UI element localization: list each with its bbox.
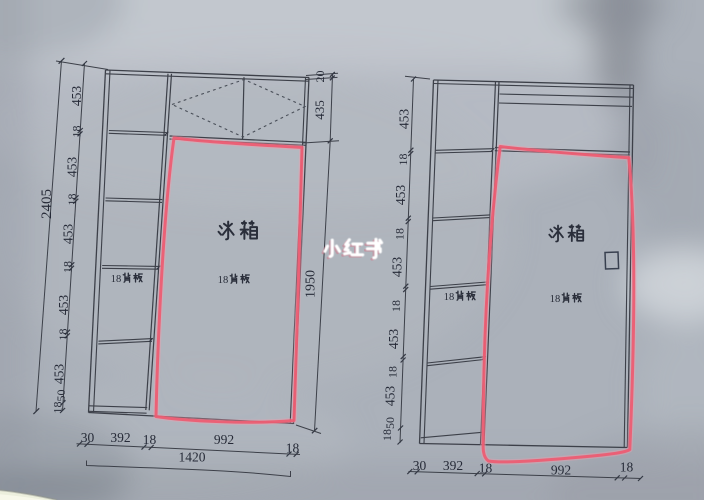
svg-text:18: 18 <box>444 292 455 303</box>
svg-text:20: 20 <box>313 71 327 83</box>
svg-text:453: 453 <box>383 386 398 407</box>
svg-text:18: 18 <box>385 366 399 378</box>
svg-text:18: 18 <box>396 154 410 166</box>
svg-text:453: 453 <box>69 86 84 107</box>
svg-text:18: 18 <box>550 294 561 305</box>
svg-text:453: 453 <box>393 185 408 206</box>
svg-text:30: 30 <box>413 458 427 473</box>
svg-text:1420: 1420 <box>179 450 206 465</box>
svg-text:50: 50 <box>383 417 397 429</box>
svg-text:453: 453 <box>65 157 80 178</box>
svg-text:18: 18 <box>218 275 229 286</box>
svg-text:992: 992 <box>551 463 571 478</box>
svg-text:18: 18 <box>50 402 64 414</box>
svg-text:453: 453 <box>61 224 76 245</box>
svg-text:392: 392 <box>110 430 130 445</box>
svg-text:435: 435 <box>312 100 327 120</box>
svg-text:18: 18 <box>392 228 406 240</box>
svg-text:392: 392 <box>443 458 463 473</box>
svg-text:18: 18 <box>69 126 83 138</box>
svg-text:18: 18 <box>389 300 403 312</box>
svg-text:18: 18 <box>65 194 79 206</box>
svg-text:18: 18 <box>60 261 74 273</box>
svg-text:992: 992 <box>214 432 234 447</box>
svg-text:453: 453 <box>390 257 405 278</box>
svg-text:30: 30 <box>81 430 95 445</box>
svg-text:50: 50 <box>54 390 68 402</box>
svg-text:453: 453 <box>52 364 67 385</box>
svg-text:18: 18 <box>111 274 122 285</box>
svg-text:453: 453 <box>397 109 412 130</box>
svg-text:453: 453 <box>386 329 401 350</box>
svg-text:2405: 2405 <box>39 189 55 219</box>
svg-text:453: 453 <box>56 295 71 316</box>
svg-text:1950: 1950 <box>304 270 319 298</box>
svg-text:18: 18 <box>56 329 70 341</box>
svg-text:18: 18 <box>380 429 394 441</box>
svg-text:18: 18 <box>620 460 634 475</box>
svg-text:18: 18 <box>286 441 300 456</box>
svg-text:18: 18 <box>143 432 157 447</box>
